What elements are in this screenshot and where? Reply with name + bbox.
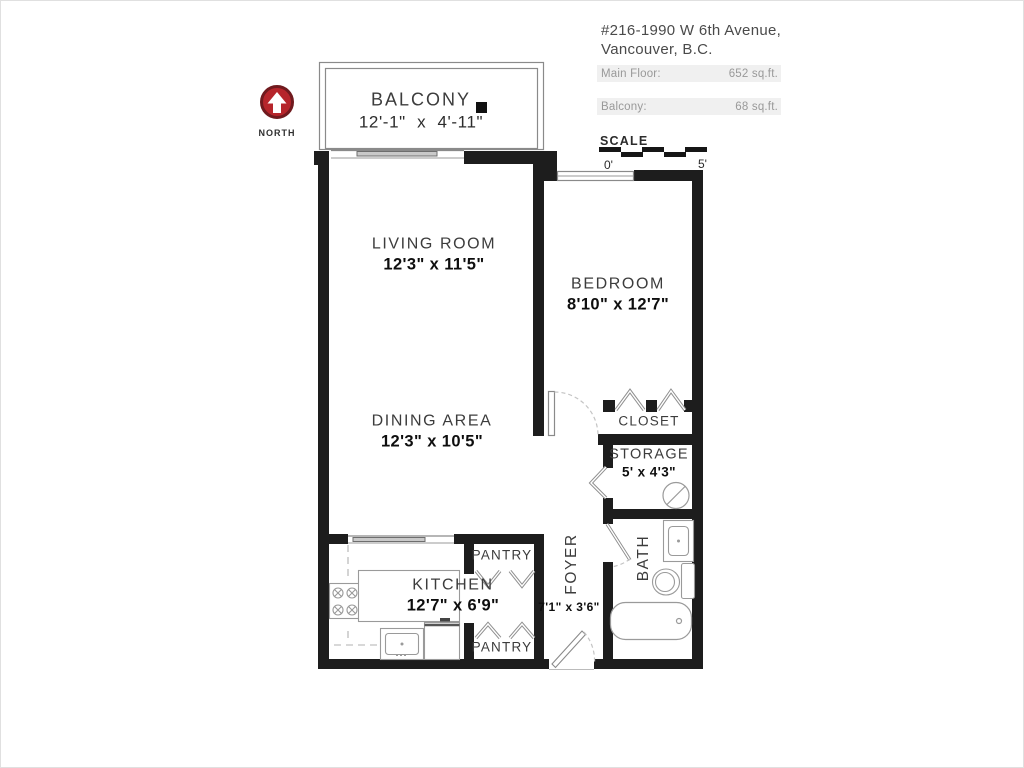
bedroom-label: BEDROOM 8'10" x 12'7"	[567, 276, 669, 315]
wall-right	[692, 170, 703, 669]
kitchen-sink	[381, 629, 424, 660]
scale-segment	[642, 147, 664, 152]
toilet	[653, 564, 695, 599]
north-arrow-icon	[257, 84, 297, 122]
area-value: 652 sq.ft.	[729, 68, 778, 80]
kitchen-counter-lines	[334, 545, 380, 645]
address-line-2: Vancouver, B.C.	[601, 41, 781, 60]
scale-segment	[685, 147, 707, 152]
living-room-label: LIVING ROOM 12'3" x 11'5"	[372, 236, 496, 275]
wall	[646, 400, 657, 412]
bath-door	[607, 524, 630, 567]
storage-bifold-door	[591, 467, 606, 498]
scale-tick-end: 5'	[698, 157, 707, 171]
foyer-label: FOYER	[563, 533, 581, 594]
bath-sink	[664, 521, 694, 562]
listing-address: #216-1990 W 6th Avenue, Vancouver, B.C.	[601, 22, 781, 59]
wall	[684, 400, 702, 412]
storage-fixture-icon	[663, 483, 689, 509]
bedroom-door	[549, 392, 599, 436]
wall-bottom	[594, 659, 703, 669]
bedroom-window	[558, 172, 634, 181]
closet-label: CLOSET	[618, 414, 679, 429]
sliding-door	[331, 151, 464, 159]
kitchen-counter-unit	[425, 618, 460, 660]
wall-bath-left	[603, 562, 613, 669]
balcony-label: BALCONY 12'-1" x 4'-11"	[359, 90, 483, 133]
scale-segment	[664, 152, 686, 157]
storage-label: STORAGE 5' x 4'3"	[609, 447, 689, 480]
wall-kitchen-top	[318, 534, 348, 544]
foyer-dims-label: 7'1" x 3'6"	[538, 598, 600, 614]
pantry-bottom-label: PANTRY	[472, 640, 533, 655]
area-row-main-floor: Main Floor: 652 sq.ft.	[597, 65, 781, 82]
wall	[603, 400, 615, 412]
wall-storage-bottom	[603, 509, 703, 519]
north-indicator: NORTH	[257, 84, 297, 134]
stove	[330, 584, 361, 619]
kitchen-passthrough	[348, 536, 454, 543]
bathtub	[611, 603, 692, 640]
wall-left	[318, 151, 329, 669]
scale-segment	[621, 152, 643, 157]
bath-label: BATH	[635, 535, 653, 582]
north-label: NORTH	[257, 128, 297, 138]
wall	[603, 509, 613, 524]
wall-bottom	[318, 659, 549, 669]
kitchen-label: KITCHEN 12'7" x 6'9"	[407, 577, 500, 616]
floor-plan-page: #216-1990 W 6th Avenue, Vancouver, B.C. …	[0, 0, 1024, 768]
area-label: Main Floor:	[601, 68, 661, 80]
wall-closet-bottom	[598, 434, 703, 445]
wall-living-bedroom	[533, 164, 544, 436]
scale-segment	[599, 147, 621, 152]
address-line-1: #216-1990 W 6th Avenue,	[601, 22, 781, 41]
pantry-top-label: PANTRY	[472, 548, 533, 563]
area-label: Balcony:	[601, 101, 647, 113]
area-row-balcony: Balcony: 68 sq.ft.	[597, 98, 781, 115]
area-value: 68 sq.ft.	[735, 101, 778, 113]
dining-area-label: DINING AREA 12'3" x 10'5"	[372, 413, 493, 452]
scale-bar	[599, 147, 707, 157]
entry-door	[549, 631, 595, 670]
scale-tick-start: 0'	[604, 158, 613, 172]
scale-label: SCALE	[600, 134, 648, 148]
